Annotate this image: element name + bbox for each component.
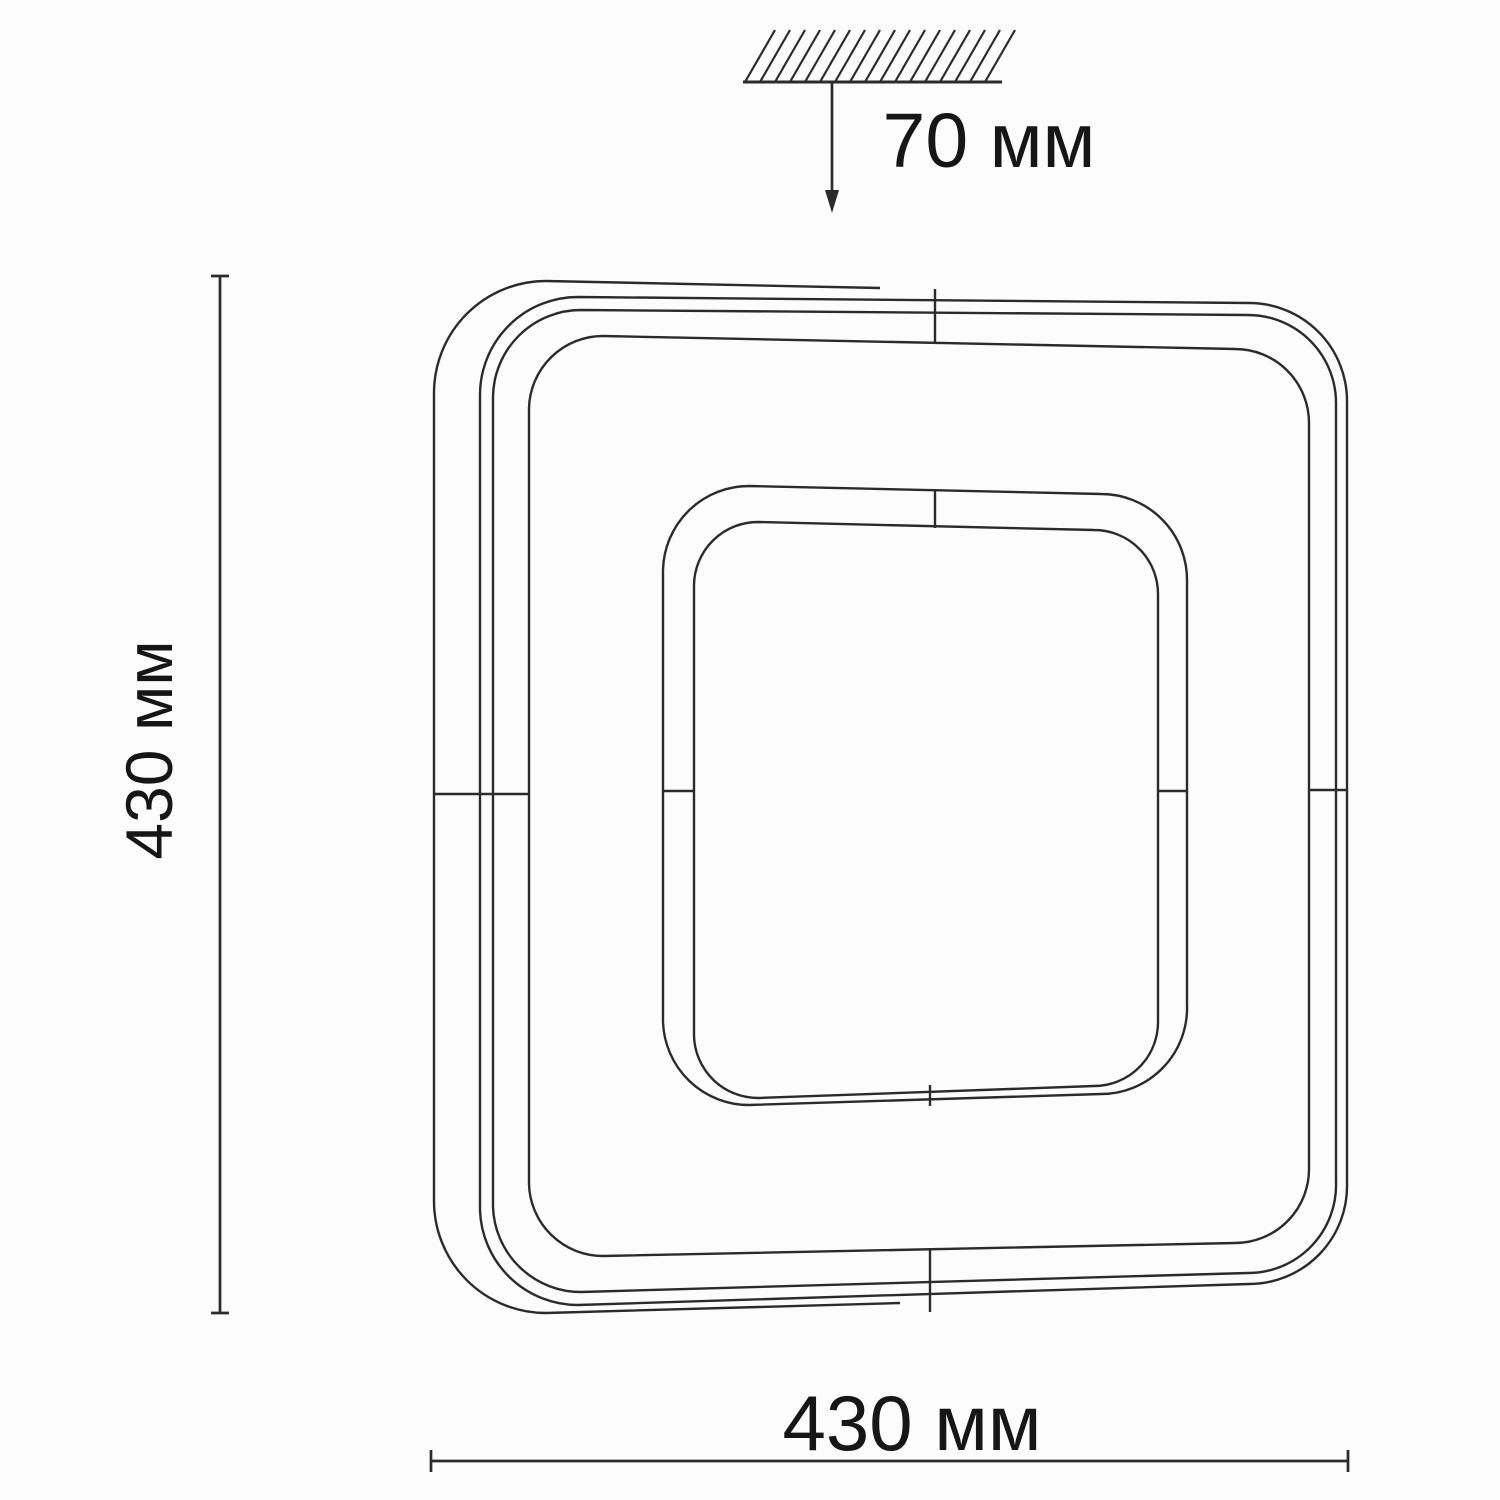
inner-ring-segment-ticks <box>663 489 1187 1106</box>
width-dimension: 430 мм <box>431 1379 1348 1472</box>
mount-arrow-head-icon <box>825 190 839 213</box>
outer-ring-face-thickness-edge <box>493 310 1336 1292</box>
ceiling-hatch-icon <box>745 30 1015 82</box>
depth-dimension-label: 70 мм <box>883 98 1096 184</box>
lamp-inner-ring <box>663 486 1187 1106</box>
height-dimension-label: 430 мм <box>112 640 186 859</box>
lamp-dimension-drawing: 70 мм 430 мм 430 мм <box>0 0 1500 1500</box>
outer-ring-inner-edge <box>529 336 1309 1256</box>
technical-drawing-canvas: 70 мм 430 мм 430 мм <box>0 0 1500 1500</box>
width-dimension-label: 430 мм <box>782 1379 1041 1467</box>
outer-ring-back-silhouette <box>434 281 900 1313</box>
inner-ring-outer-edge <box>663 486 1187 1105</box>
height-dimension-line <box>211 276 229 1313</box>
lamp-outer-ring <box>434 281 1347 1313</box>
outer-ring-face-outer-edge <box>480 297 1347 1305</box>
height-dimension: 430 мм <box>112 276 229 1313</box>
inner-ring-inner-edge <box>694 522 1158 1098</box>
outer-ring-segment-ticks <box>434 289 1347 1312</box>
